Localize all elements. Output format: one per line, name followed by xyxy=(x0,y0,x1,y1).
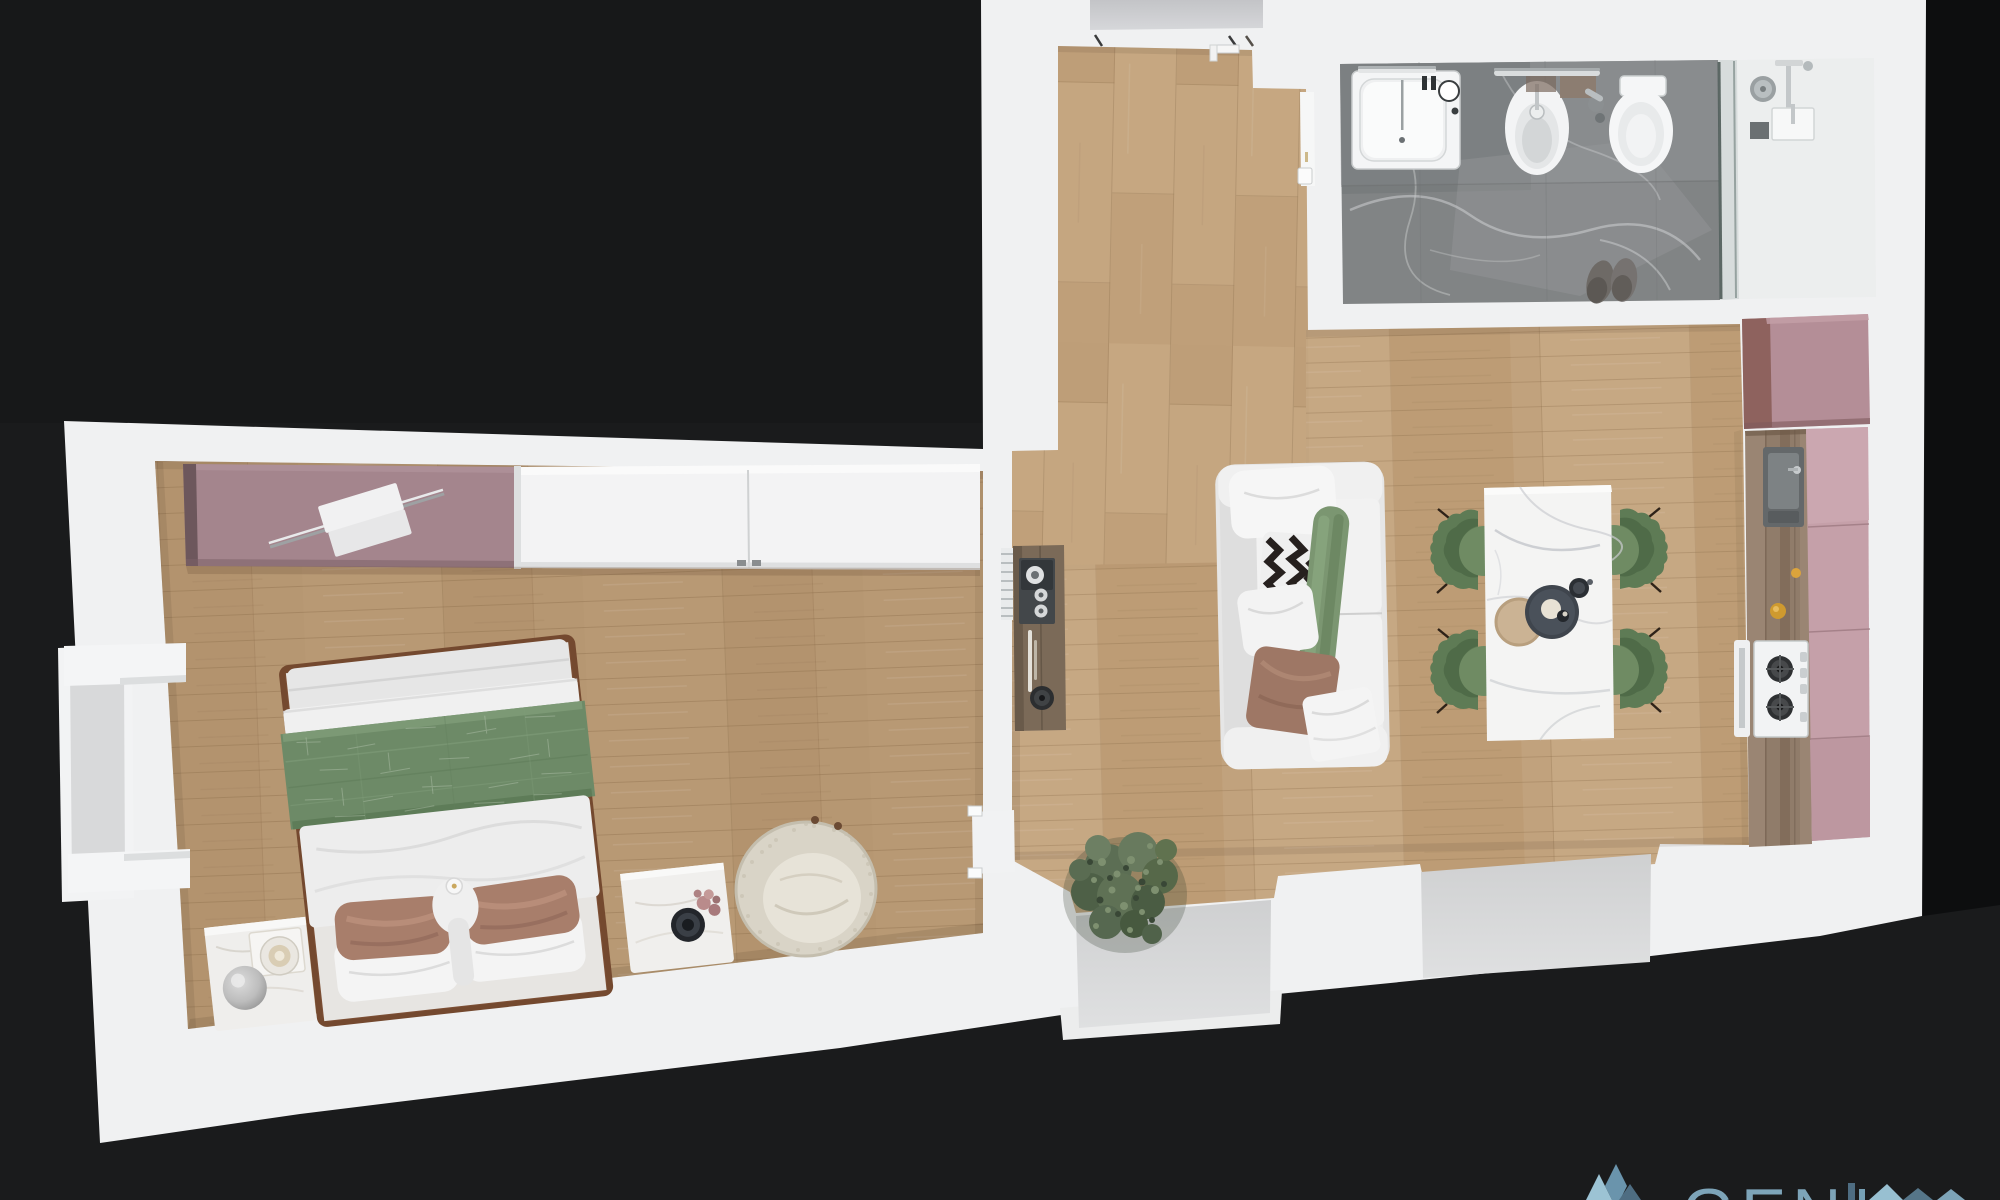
svg-text:GEN: GEN xyxy=(1682,1175,1847,1200)
